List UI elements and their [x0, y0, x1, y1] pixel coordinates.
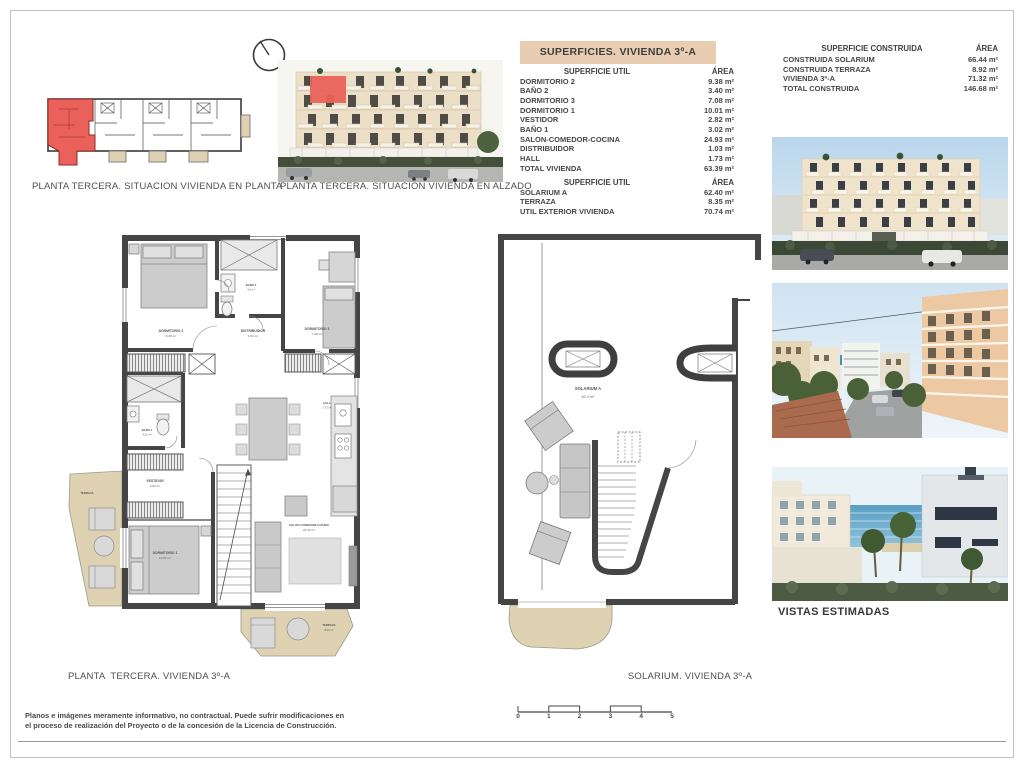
row-area: 8.35 m² — [708, 197, 734, 206]
svg-text:VESTIDOR: VESTIDOR — [146, 479, 164, 483]
row-area: 3.40 m² — [708, 86, 734, 95]
elevation-highlight — [310, 76, 346, 103]
row-area: 8.92 m² — [972, 65, 998, 74]
svg-text:7.08 m²: 7.08 m² — [312, 332, 323, 336]
table-row: TOTAL VIVIENDA63.39 m² — [520, 164, 734, 174]
scale-tick: 5 — [670, 713, 674, 720]
disclaimer-text: Planos e imágenes meramente informativo,… — [25, 711, 344, 730]
svg-text:DORMITORIO 3: DORMITORIO 3 — [305, 327, 330, 331]
scale-bar-ticks: 012345 — [505, 713, 685, 725]
solarium-label: SOLARIUM A — [575, 386, 601, 391]
row-label: CONSTRUIDA SOLARIUM — [783, 55, 875, 64]
row-area: 66.44 m² — [968, 55, 998, 64]
caption-floor-plan: PLANTA TERCERA. VIVIENDA 3º-A — [68, 671, 230, 682]
section-header-label: SUPERFICIE CONSTRUIDA — [783, 44, 961, 53]
scale-tick: 4 — [639, 713, 643, 720]
row-area: 9.38 m² — [708, 77, 734, 86]
solarium-furniture — [525, 402, 590, 565]
section-header-area: ÁREA — [712, 67, 734, 76]
dining-table — [236, 398, 300, 460]
row-label: BAÑO 2 — [520, 86, 548, 95]
table-row: DISTRIBUIDOR1.03 m² — [520, 144, 734, 154]
row-area: 10.01 m² — [704, 106, 734, 115]
row-label: CONSTRUIDA TERRAZA — [783, 65, 871, 74]
row-label: DISTRIBUIDOR — [520, 144, 574, 153]
table-row: BAÑO 13.02 m² — [520, 125, 734, 135]
row-area: 146.68 m² — [964, 84, 998, 93]
bed-dormitorio2 — [129, 244, 207, 308]
svg-text:1.73 m²: 1.73 m² — [322, 406, 331, 410]
svg-text:3.02 m²: 3.02 m² — [142, 433, 151, 437]
caption-plan-situation: PLANTA TERCERA. SITUACION VIVIENDA EN PL… — [32, 181, 254, 192]
row-label: TERRAZA — [520, 197, 556, 206]
photo-building-front — [772, 137, 1008, 270]
scale-tick: 2 — [578, 713, 582, 720]
table-row: VIVIENDA 3º-A71.32 m² — [783, 74, 998, 84]
table-row: SOLARIUM A62.40 m² — [520, 188, 734, 198]
row-area: 62.40 m² — [704, 188, 734, 197]
row-label: HALL — [520, 154, 540, 163]
stairs — [217, 465, 251, 606]
svg-text:9.38 m²: 9.38 m² — [166, 334, 177, 338]
table-row: VESTIDOR2.82 m² — [520, 115, 734, 125]
table-row: DORMITORIO 37.08 m² — [520, 96, 734, 106]
row-area: 7.08 m² — [708, 96, 734, 105]
row-label: DORMITORIO 3 — [520, 96, 575, 105]
row-label: DORMITORIO 1 — [520, 106, 575, 115]
bottom-divider — [18, 741, 1006, 742]
terrace-left: TERRAZA — [69, 471, 122, 606]
svg-text:3.4 m²: 3.4 m² — [247, 288, 255, 292]
svg-text:HALL: HALL — [323, 401, 331, 405]
superficies-section-header: SUPERFICIE UTIL ÁREA — [520, 178, 734, 188]
section-header-label: SUPERFICIE UTIL — [520, 67, 674, 76]
row-label: VIVIENDA 3º-A — [783, 74, 835, 83]
row-area: 70.74 m² — [704, 207, 734, 216]
building-overview-plan — [45, 95, 255, 187]
table-row: CONSTRUIDA TERRAZA8.92 m² — [783, 65, 998, 75]
solarium-terrace — [509, 605, 612, 649]
svg-text:BAÑO 2: BAÑO 2 — [246, 282, 257, 287]
bed-dormitorio1 — [129, 526, 211, 594]
svg-text:1.03 m²: 1.03 m² — [248, 334, 259, 338]
room-label-terraza-left: TERRAZA — [80, 491, 93, 495]
row-area: 63.39 m² — [704, 164, 734, 173]
row-area: 1.03 m² — [708, 144, 734, 153]
superficies-table-title: SUPERFICIES. VIVIENDA 3º-A — [520, 41, 716, 64]
svg-text:DORMITORIO 1: DORMITORIO 1 — [153, 551, 178, 555]
svg-text:8.35 m²: 8.35 m² — [324, 628, 333, 632]
solarium-stairs — [595, 432, 696, 572]
photo-street-view — [772, 283, 1008, 438]
scale-tick: 1 — [547, 713, 551, 720]
solarium-plan-drawing: SOLARIUM A 62.4 m² — [490, 228, 780, 658]
construida-table: SUPERFICIE CONSTRUIDA ÁREA CONSTRUIDA SO… — [783, 44, 998, 104]
section-header-area: ÁREA — [976, 44, 998, 53]
table-row: DORMITORIO 29.38 m² — [520, 77, 734, 87]
caption-solarium-plan: SOLARIUM. VIVIENDA 3º-A — [590, 671, 790, 682]
row-label: DORMITORIO 2 — [520, 77, 575, 86]
planter-right — [680, 348, 736, 378]
tree — [477, 131, 499, 153]
table-row: SALON-COMEDOR-COCINA24.93 m² — [520, 135, 734, 145]
row-label: BAÑO 1 — [520, 125, 548, 134]
floor-plan-drawing: TERRAZA TERRAZA 8.35 m² — [65, 228, 380, 662]
svg-text:DORMITORIO 2: DORMITORIO 2 — [159, 329, 184, 333]
construida-header: SUPERFICIE CONSTRUIDA ÁREA — [783, 44, 998, 54]
row-label: VESTIDOR — [520, 115, 558, 124]
row-label: SOLARIUM A — [520, 188, 567, 197]
plan-sheet: { "sheet": { "captions": { "plan_situati… — [0, 0, 1024, 768]
terrace-bottom: TERRAZA 8.35 m² — [241, 609, 353, 656]
svg-text:2.82 m²: 2.82 m² — [150, 484, 161, 488]
scale-tick: 0 — [516, 713, 520, 720]
section-header-label: SUPERFICIE UTIL — [520, 178, 674, 187]
table-row: UTIL EXTERIOR VIVIENDA70.74 m² — [520, 207, 734, 217]
row-label: SALON-COMEDOR-COCINA — [520, 135, 620, 144]
planter-left — [552, 344, 614, 374]
table-row: TOTAL CONSTRUIDA146.68 m² — [783, 84, 998, 94]
svg-text:BAÑO 1: BAÑO 1 — [142, 427, 153, 432]
row-area: 2.82 m² — [708, 115, 734, 124]
row-label: UTIL EXTERIOR VIVIENDA — [520, 207, 614, 216]
kitchen-counter — [331, 396, 357, 516]
table-row: CONSTRUIDA SOLARIUM66.44 m² — [783, 55, 998, 65]
bed-dormitorio3 — [319, 252, 355, 348]
svg-text:62.4 m²: 62.4 m² — [582, 395, 596, 399]
row-area: 3.02 m² — [708, 125, 734, 134]
caption-elevation-situation: PLANTA TERCERA. SITUACION VIVIENDA EN AL… — [280, 181, 505, 192]
elevation-render — [278, 60, 503, 182]
table-row: BAÑO 23.40 m² — [520, 86, 734, 96]
superficies-table: SUPERFICIES. VIVIENDA 3º-A SUPERFICIE UT… — [520, 41, 734, 221]
views-label: VISTAS ESTIMADAS — [778, 606, 890, 618]
row-area: 1.73 m² — [708, 154, 734, 163]
svg-text:10.01 m²: 10.01 m² — [159, 556, 171, 560]
svg-text:SALON-COMEDOR-COCINA: SALON-COMEDOR-COCINA — [289, 523, 330, 527]
svg-text:24.93 m²: 24.93 m² — [303, 528, 315, 532]
row-area: 71.32 m² — [968, 74, 998, 83]
scale-tick: 3 — [609, 713, 613, 720]
row-label: TOTAL VIVIENDA — [520, 164, 582, 173]
svg-text:DISTRIBUIDOR: DISTRIBUIDOR — [241, 329, 266, 333]
photo-sea-view — [772, 467, 1008, 601]
table-row: TERRAZA8.35 m² — [520, 197, 734, 207]
superficies-section-header: SUPERFICIE UTIL ÁREA — [520, 67, 734, 77]
row-area: 24.93 m² — [704, 135, 734, 144]
room-label-terraza-bottom: TERRAZA — [322, 623, 335, 627]
table-row: DORMITORIO 110.01 m² — [520, 106, 734, 116]
section-header-area: ÁREA — [712, 178, 734, 187]
row-label: TOTAL CONSTRUIDA — [783, 84, 859, 93]
table-row: HALL1.73 m² — [520, 154, 734, 164]
